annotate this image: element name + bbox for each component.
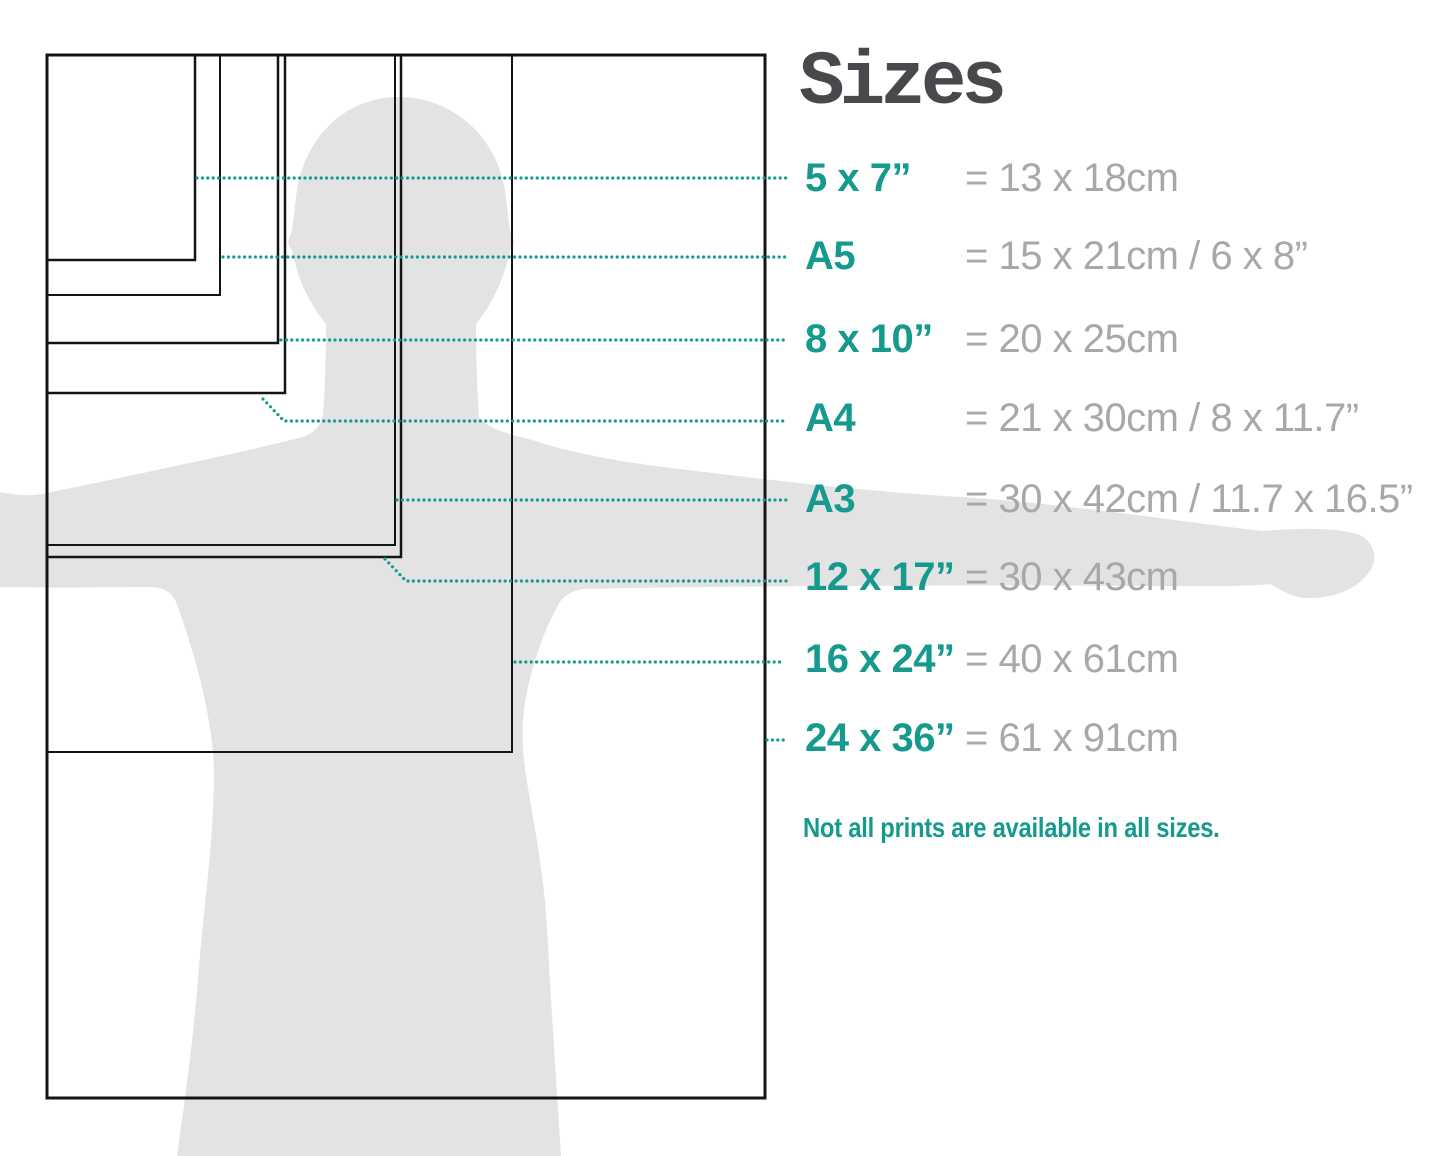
size-label: 5 x 7” [805, 156, 965, 201]
availability-note: Not all prints are available in all size… [803, 812, 1220, 844]
size-label: 16 x 24” [805, 637, 965, 682]
size-row-12x17: 12 x 17” = 30 x 43cm [805, 555, 1179, 600]
size-row-8x10: 8 x 10” = 20 x 25cm [805, 317, 1179, 362]
size-rect-8x10 [47, 55, 278, 343]
size-metric: = 30 x 43cm [965, 555, 1179, 600]
size-row-a4: A4 = 21 x 30cm / 8 x 11.7” [805, 396, 1359, 441]
size-label: A5 [805, 234, 965, 279]
size-label: A3 [805, 477, 965, 522]
size-metric: = 40 x 61cm [965, 637, 1179, 682]
size-label: A4 [805, 396, 965, 441]
size-metric: = 20 x 25cm [965, 317, 1179, 362]
sizes-infographic: Sizes 5 x 7” = 13 x 18cm A5 = 15 x 21cm … [0, 0, 1445, 1156]
size-row-24x36: 24 x 36” = 61 x 91cm [805, 716, 1179, 761]
size-metric: = 13 x 18cm [965, 156, 1179, 201]
size-row-5x7: 5 x 7” = 13 x 18cm [805, 156, 1179, 201]
size-rect-5x7 [47, 55, 195, 260]
size-row-16x24: 16 x 24” = 40 x 61cm [805, 637, 1179, 682]
size-metric: = 61 x 91cm [965, 716, 1179, 761]
size-metric: = 30 x 42cm / 11.7 x 16.5” [965, 477, 1413, 522]
size-row-a3: A3 = 30 x 42cm / 11.7 x 16.5” [805, 477, 1413, 522]
sizes-diagram-svg [0, 0, 1445, 1156]
size-label: 12 x 17” [805, 555, 965, 600]
page-title: Sizes [799, 40, 1002, 126]
size-row-a5: A5 = 15 x 21cm / 6 x 8” [805, 234, 1307, 279]
size-metric: = 15 x 21cm / 6 x 8” [965, 234, 1307, 279]
size-label: 8 x 10” [805, 317, 965, 362]
size-metric: = 21 x 30cm / 8 x 11.7” [965, 396, 1359, 441]
size-label: 24 x 36” [805, 716, 965, 761]
